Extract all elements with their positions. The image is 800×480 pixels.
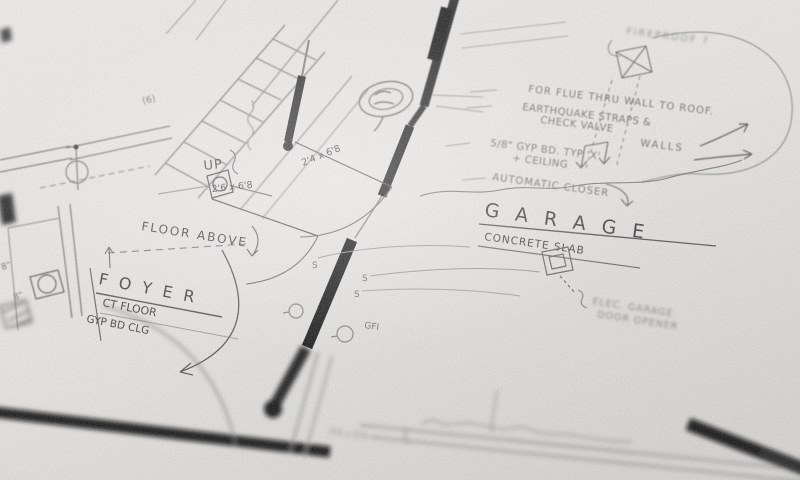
blueprint-photo: (6) FOR FLUE THRU WALL TO	[0, 0, 800, 480]
grain-light	[0, 0, 800, 480]
floorplan-sketch: (6) FOR FLUE THRU WALL TO	[0, 0, 800, 480]
